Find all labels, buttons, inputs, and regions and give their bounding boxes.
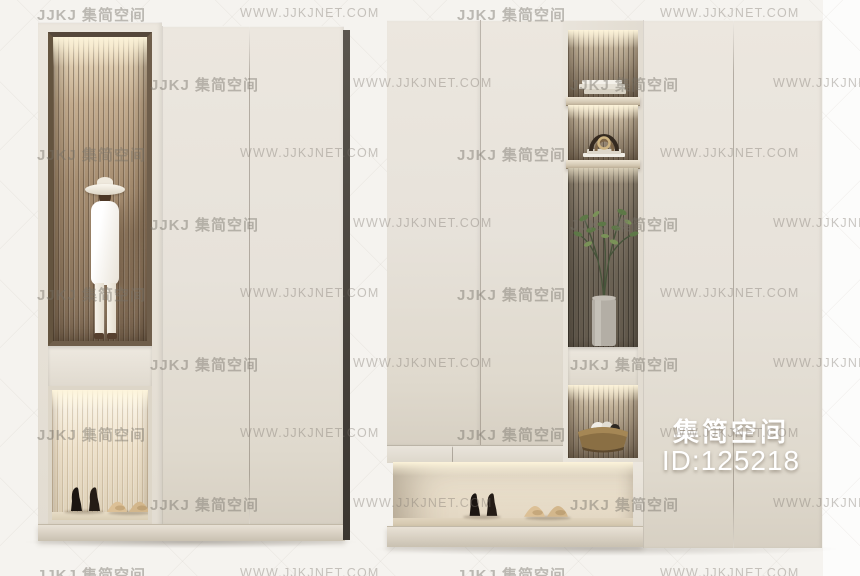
right-unit-door-left-2 [480, 20, 566, 445]
figurine-right-leg [107, 283, 116, 335]
decor-bowl-with-cloth [574, 417, 632, 455]
right-wardrobe-unit: 集简空间 ID:125218 [385, 18, 823, 548]
led-glow-top [568, 30, 638, 48]
watermark-site: WWW.JJKJNET.COM [240, 6, 380, 20]
display-shelf-column [563, 20, 643, 464]
door-seam [249, 26, 250, 524]
watermark-brand: JJKJ 集简空间 [37, 564, 146, 576]
left-wardrobe-unit [38, 22, 350, 540]
watermark-brand: JJKJ 集简空间 [457, 564, 566, 576]
shelf-compartment-sculpture [568, 105, 638, 160]
watermark-site: WWW.JJKJNET.COM [660, 566, 800, 576]
book [584, 89, 626, 94]
led-glow-top [53, 37, 147, 67]
niche-floor [393, 518, 633, 526]
upper-display-niche [48, 32, 152, 346]
led-glow-top [568, 385, 638, 401]
black-high-heels [463, 491, 501, 518]
drawer-seam [452, 446, 453, 463]
column-drawer-band [568, 347, 638, 385]
shelf-compartment-bowl [568, 385, 638, 458]
beige-flats [523, 500, 571, 519]
right-unit-plinth [387, 526, 643, 547]
plant-in-cylinder-vase [558, 190, 650, 348]
lower-shoe-niche [48, 386, 152, 524]
figurine-hat-brim [85, 184, 125, 195]
beige-flats [106, 496, 152, 514]
figurine-white-coat [91, 201, 119, 285]
left-unit-plinth [38, 524, 345, 541]
led-glow-top [52, 390, 148, 410]
watermark-site: WWW.JJKJNET.COM [240, 566, 380, 576]
right-shoe-niche [393, 462, 633, 526]
shelf-compartment-books [568, 30, 638, 97]
drawer-strip [387, 445, 563, 463]
shelf-compartment-plant [568, 168, 638, 347]
figurine-left-leg [95, 283, 104, 335]
middle-drawer-band [48, 346, 152, 386]
led-glow-top [568, 168, 638, 184]
arch-sculpture-on-books [581, 115, 627, 159]
left-unit-side-edge [343, 30, 350, 540]
led-glow-top [393, 462, 633, 476]
black-high-heels [64, 485, 104, 513]
figurine-right-shoe [107, 333, 117, 339]
right-unit-door-left-1 [387, 20, 480, 445]
figurine-left-shoe [94, 333, 104, 339]
left-unit-door-panel [162, 26, 344, 524]
niche-right-frame [633, 462, 643, 526]
model-id-text: ID:125218 [661, 446, 801, 476]
background-right-strip [823, 0, 860, 576]
site-id-overlay: 集简空间 ID:125218 [661, 418, 801, 476]
mannequin-figurine [79, 177, 137, 341]
site-brand-text: 集简空间 [661, 418, 801, 446]
books-stack [578, 78, 628, 94]
product-render-stage: 集简空间 ID:125218 JJKJ 集简空间WWW.JJKJNET.COMJ… [0, 0, 860, 576]
